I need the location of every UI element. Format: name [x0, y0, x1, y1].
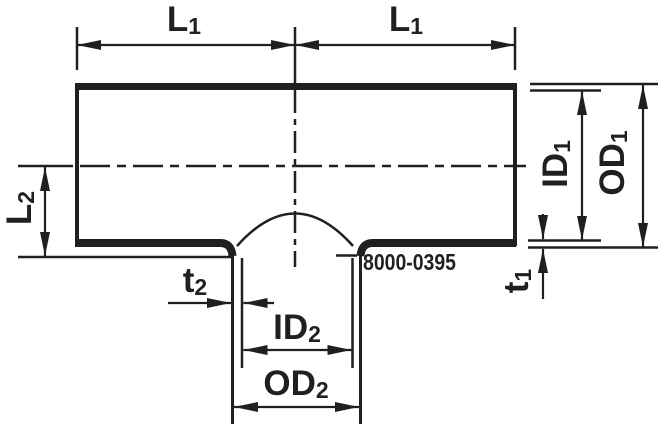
label-id2: ID2 — [273, 308, 321, 347]
label-l1-left: L1 — [167, 0, 201, 39]
label-id1: ID1 — [536, 140, 575, 188]
centerlines — [64, 27, 526, 267]
tee-fitting-diagram: L1 L1 L2 ID1 OD1 t1 t2 ID2 OD2 8000-0395 — [0, 0, 659, 425]
label-od2: OD2 — [263, 364, 328, 403]
label-t1: t1 — [497, 269, 536, 294]
run-bottom-wall-left — [75, 243, 233, 256]
drawing-canvas: L1 L1 L2 ID1 OD1 t1 t2 ID2 OD2 8000-0395 — [0, 0, 659, 425]
label-od1: OD1 — [593, 130, 632, 196]
label-t2: t2 — [183, 261, 207, 300]
dimension-labels: L1 L1 L2 ID1 OD1 t1 t2 ID2 OD2 8000-0395 — [0, 0, 632, 403]
label-l2: L2 — [0, 191, 39, 225]
label-l1-right: L1 — [389, 0, 423, 39]
part-number: 8000-0395 — [363, 249, 456, 275]
